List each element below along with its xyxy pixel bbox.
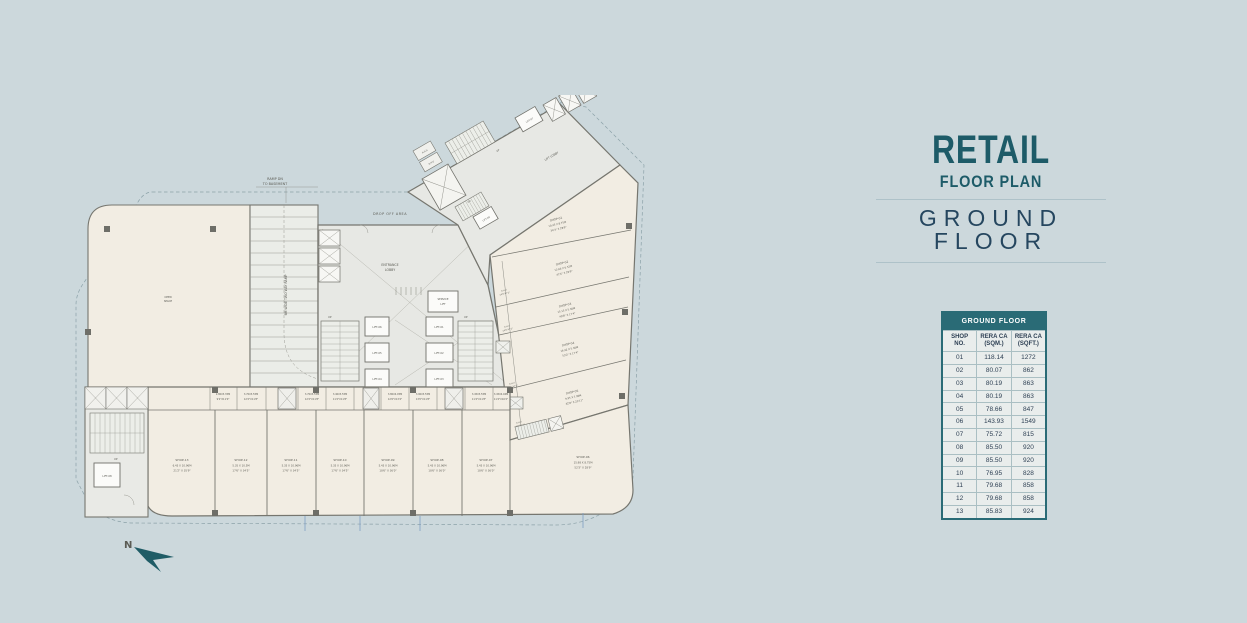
svg-text:5.35 X 10.5M: 5.35 X 10.5M xyxy=(232,464,249,468)
floor-plan: OPEN SPACE 6M WIDE TWO WAY RAMP RAMP DN … xyxy=(60,95,675,575)
table-cell: 80.19 xyxy=(977,377,1012,390)
table-row: 0885.50920 xyxy=(942,441,1046,454)
svg-text:12'2"X11'8": 12'2"X11'8" xyxy=(305,398,319,401)
stair-left xyxy=(321,321,359,381)
table-cell: 75.72 xyxy=(977,428,1012,441)
table-row: 0280.07862 xyxy=(942,364,1046,377)
col-rera-sqft: RERA CA (SQFT.) xyxy=(1011,331,1046,352)
table-row: 01118.141272 xyxy=(942,352,1046,365)
table-cell: 79.68 xyxy=(977,492,1012,505)
table-cell: 02 xyxy=(942,364,977,377)
svg-text:SHOP-13: SHOP-13 xyxy=(175,458,188,462)
svg-text:3.90X3.55M: 3.90X3.55M xyxy=(416,393,430,396)
ramp-note: RAMP DN xyxy=(267,177,283,181)
north-label: N xyxy=(124,540,132,551)
north-arrow-icon xyxy=(134,547,174,572)
ramp-label: 6M WIDE TWO WAY RAMP xyxy=(284,275,288,316)
table-row: 0775.72815 xyxy=(942,428,1046,441)
ramp-note: TO BASEMENT xyxy=(262,182,288,186)
page-subtitle: FLOOR PLAN xyxy=(893,173,1089,190)
table-cell: 924 xyxy=(1011,505,1046,518)
table-cell: 79.68 xyxy=(977,480,1012,493)
svg-text:18'6" X 36'0": 18'6" X 36'0" xyxy=(379,469,396,473)
svg-text:17'6" X 34'5": 17'6" X 34'5" xyxy=(331,469,348,473)
table-cell: 80.19 xyxy=(977,390,1012,403)
table-cell: 10 xyxy=(942,467,977,480)
page-title: RETAIL xyxy=(899,130,1083,170)
drop-off-label: DROP OFF AREA xyxy=(373,212,407,216)
table-cell: 78.66 xyxy=(977,403,1012,416)
table-cell: 13 xyxy=(942,505,977,518)
svg-text:17'6" X 34'5": 17'6" X 34'5" xyxy=(232,469,249,473)
svg-text:18'6" X 36'0": 18'6" X 36'0" xyxy=(477,469,494,473)
svg-text:5.35 X 10.96M: 5.35 X 10.96M xyxy=(282,464,301,468)
table-title-row: GROUND FLOOR xyxy=(942,312,1046,331)
svg-text:5.43 X 10.96M: 5.43 X 10.96M xyxy=(477,464,496,468)
open-space-label: SPACE xyxy=(164,299,173,303)
svg-text:3.70X3.55M: 3.70X3.55M xyxy=(305,393,319,396)
open-space-label: OPEN xyxy=(164,295,171,299)
table-cell: 07 xyxy=(942,428,977,441)
svg-text:18'6" X 36'0": 18'6" X 36'0" xyxy=(428,469,445,473)
svg-text:3.70X3.55M: 3.70X3.55M xyxy=(244,393,258,396)
svg-text:15.98 X 8.75M: 15.98 X 8.75M xyxy=(574,461,593,465)
table-row: 1179.68858 xyxy=(942,480,1046,493)
table-cell: 85.50 xyxy=(977,454,1012,467)
table-row: 0480.19863 xyxy=(942,390,1046,403)
table-cell: 85.83 xyxy=(977,505,1012,518)
north-arrow: N xyxy=(124,540,174,572)
svg-text:SHOP-12: SHOP-12 xyxy=(234,458,247,462)
svg-text:SHOP-10: SHOP-10 xyxy=(333,458,346,462)
table-cell: 12 xyxy=(942,492,977,505)
table-cell: 01 xyxy=(942,352,977,365)
table-cell: 09 xyxy=(942,454,977,467)
table-cell: 08 xyxy=(942,441,977,454)
svg-text:6.43 X 10.96M: 6.43 X 10.96M xyxy=(173,464,192,468)
table-cell: 11 xyxy=(942,480,977,493)
table-row: 0985.50920 xyxy=(942,454,1046,467)
up-label: UP xyxy=(464,315,468,319)
lift-08-label: LIFT-08 xyxy=(102,474,112,478)
svg-text:12'2"X11'8": 12'2"X11'8" xyxy=(244,398,258,401)
svg-text:5.43 X 10.96M: 5.43 X 10.96M xyxy=(428,464,447,468)
svg-text:17'6" X 34'5": 17'6" X 34'5" xyxy=(282,469,299,473)
svg-text:3.45X4.94M: 3.45X4.94M xyxy=(494,393,508,396)
service-lift-label: SERVICE xyxy=(438,297,449,301)
table-title: GROUND FLOOR xyxy=(942,312,1046,331)
divider xyxy=(876,262,1106,263)
svg-text:52'3" X 28'9": 52'3" X 28'9" xyxy=(574,466,591,470)
ramp-note-leader xyxy=(256,187,318,203)
table-cell: 828 xyxy=(1011,467,1046,480)
svg-text:21'2" X 35'9": 21'2" X 35'9" xyxy=(173,469,190,473)
table-cell: 862 xyxy=(1011,364,1046,377)
table-cell: 858 xyxy=(1011,492,1046,505)
page: OPEN SPACE 6M WIDE TWO WAY RAMP RAMP DN … xyxy=(0,0,1247,623)
service-lift-box xyxy=(428,291,458,312)
svg-text:3.45X3.55M: 3.45X3.55M xyxy=(472,393,486,396)
entrance-lobby-label: LOBBY xyxy=(385,268,395,272)
table-row: 0578.66847 xyxy=(942,403,1046,416)
svg-text:13'0"X11'8": 13'0"X11'8" xyxy=(416,398,430,401)
table-cell: 05 xyxy=(942,403,977,416)
table-cell: 80.07 xyxy=(977,364,1012,377)
stair-core-left: UP LIFT-08 xyxy=(85,387,148,517)
svg-text:12'6"X13'4": 12'6"X13'4" xyxy=(388,398,402,401)
svg-text:SHOP-07: SHOP-07 xyxy=(479,458,492,462)
floor-title: GROUND FLOOR xyxy=(876,207,1106,253)
lift-04-label: LIFT-04 xyxy=(372,377,382,381)
svg-text:11'2"X11'8": 11'2"X11'8" xyxy=(333,398,347,401)
table-cell: 118.14 xyxy=(977,352,1012,365)
area-table: GROUND FLOOR SHOP NO. RERA CA (SQM.) RER… xyxy=(941,311,1047,520)
svg-text:SHOP-09: SHOP-09 xyxy=(381,458,394,462)
svg-text:5.43 X 10.96M: 5.43 X 10.96M xyxy=(379,464,398,468)
table-cell: 1272 xyxy=(1011,352,1046,365)
table-cell: 85.50 xyxy=(977,441,1012,454)
lift-06-label: LIFT-06 xyxy=(372,325,382,329)
divider xyxy=(876,199,1106,200)
up-label: UP xyxy=(114,457,118,461)
up-label: UP xyxy=(328,315,332,319)
shop-12: SHOP-12 5.35 X 10.5M 17'6" X 34'5" xyxy=(232,458,249,473)
col-shop-no: SHOP NO. xyxy=(942,331,977,352)
table-cell: 920 xyxy=(1011,454,1046,467)
lift-05-label: LIFT-05 xyxy=(372,351,382,355)
table-cell: 04 xyxy=(942,390,977,403)
table-row: 1385.83924 xyxy=(942,505,1046,518)
lift-01-label: LIFT-01 xyxy=(434,325,444,329)
table-row: 1076.95828 xyxy=(942,467,1046,480)
svg-text:2.80X3.35M: 2.80X3.35M xyxy=(216,393,230,396)
table-cell: 76.95 xyxy=(977,467,1012,480)
table-row: 06143.931549 xyxy=(942,416,1046,429)
table-cell: 03 xyxy=(942,377,977,390)
table-cell: 143.93 xyxy=(977,416,1012,429)
title-block: RETAIL FLOOR PLAN GROUND FLOOR xyxy=(876,130,1106,270)
table-row: 0380.19863 xyxy=(942,377,1046,390)
area-table-body: 01118.1412720280.078620380.198630480.198… xyxy=(942,352,1046,519)
service-lift-label: LIFT xyxy=(440,302,446,306)
table-cell: 863 xyxy=(1011,377,1046,390)
svg-text:5.35 X 10.96M: 5.35 X 10.96M xyxy=(331,464,350,468)
svg-text:11'4"X11'8": 11'4"X11'8" xyxy=(472,398,486,401)
lift-03-label: LIFT-03 xyxy=(434,377,444,381)
svg-text:3.80X4.05M: 3.80X4.05M xyxy=(388,393,402,396)
stair-right xyxy=(458,321,493,381)
table-cell: 06 xyxy=(942,416,977,429)
svg-text:3.40X3.55M: 3.40X3.55M xyxy=(333,393,347,396)
table-cell: 863 xyxy=(1011,390,1046,403)
svg-text:9'2"X11'0": 9'2"X11'0" xyxy=(217,398,230,401)
lift-02-label: LIFT-02 xyxy=(434,351,444,355)
table-cell: 1549 xyxy=(1011,416,1046,429)
basement-ramp: 6M WIDE TWO WAY RAMP xyxy=(250,205,318,387)
col-rera-sqm: RERA CA (SQM.) xyxy=(977,331,1012,352)
table-cell: 815 xyxy=(1011,428,1046,441)
table-cell: 920 xyxy=(1011,441,1046,454)
entrance-lobby-label: ENTRANCE xyxy=(381,263,398,267)
svg-text:SHOP-06: SHOP-06 xyxy=(576,455,589,459)
svg-text:SHOP-11: SHOP-11 xyxy=(284,458,297,462)
table-cell: 858 xyxy=(1011,480,1046,493)
svg-text:11'4"X16'2": 11'4"X16'2" xyxy=(494,398,508,401)
ahu-rooms: A.H.U A.H.U xyxy=(413,141,442,172)
table-row: 1279.68858 xyxy=(942,492,1046,505)
svg-text:SHOP-08: SHOP-08 xyxy=(430,458,443,462)
table-cell: 847 xyxy=(1011,403,1046,416)
table-header-row: SHOP NO. RERA CA (SQM.) RERA CA (SQFT.) xyxy=(942,331,1046,352)
